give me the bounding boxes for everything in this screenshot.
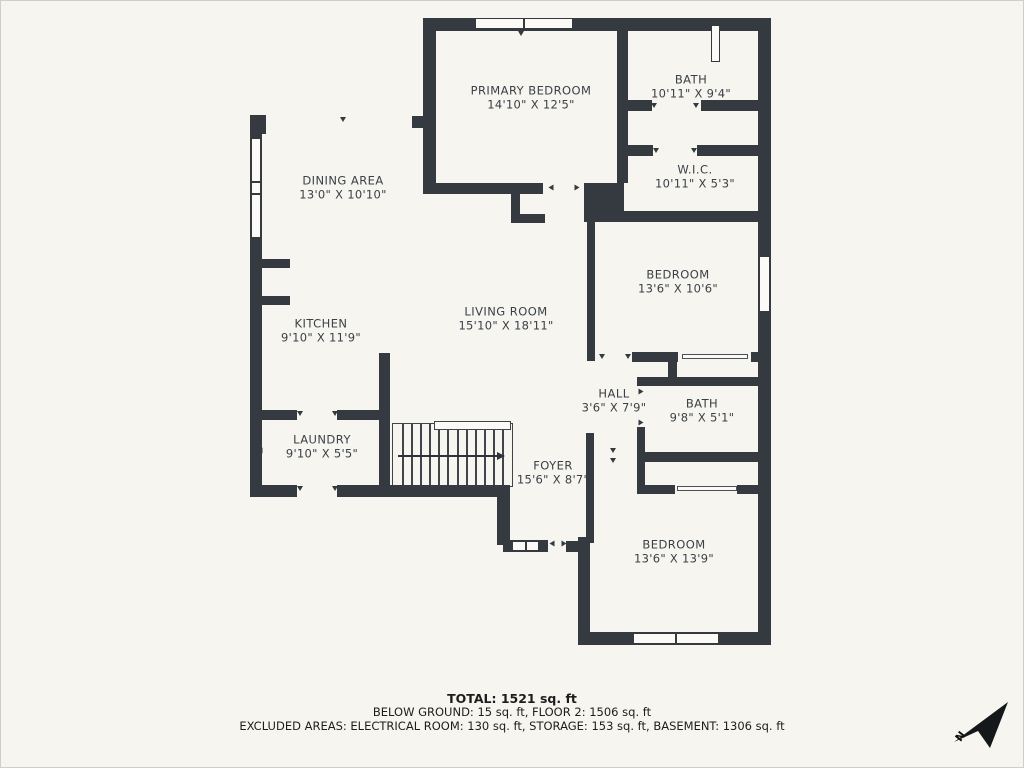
wall-segment [511,214,545,223]
wall-segment [637,452,758,462]
door-tick [258,448,263,454]
room-name: W.I.C. [655,164,735,178]
room-name: BEDROOM [638,269,718,283]
room-name: LAUNDRY [286,434,358,448]
room-name: BATH [670,398,735,412]
room-label-dining-area: DINING AREA13'0" X 10'10" [299,175,387,202]
room-dimensions: 15'6" X 8'7" [517,473,589,487]
door-tick [550,541,555,547]
wall-segment [250,410,297,420]
wall-segment [497,490,510,545]
room-name: KITCHEN [281,318,361,332]
wall-segment [637,485,675,494]
closet-door-line [682,354,748,359]
room-dimensions: 13'6" X 10'6" [638,282,718,296]
compass-arrow [946,694,1016,754]
room-label-hall: HALL3'6" X 7'9" [582,388,647,415]
room-name: HALL [582,388,647,402]
door-tick [332,486,338,491]
door-tick [610,448,616,453]
window-mullion [252,193,260,195]
wall-segment [637,377,758,386]
floorplan-page: PRIMARY BEDROOM14'10" X 12'5"BATH10'11" … [0,0,1024,768]
room-label-primary-bedroom: PRIMARY BEDROOM14'10" X 12'5" [471,85,592,112]
excluded-areas-text: EXCLUDED AREAS: ELECTRICAL ROOM: 130 sq.… [0,720,1024,734]
area-summary: TOTAL: 1521 sq. ft BELOW GROUND: 15 sq. … [0,692,1024,733]
room-dimensions: 13'0" X 10'10" [299,188,387,202]
room-label-living-room: LIVING ROOM15'10" X 18'11" [458,306,553,333]
wall-segment [624,211,758,222]
window-mullion [525,542,527,550]
window [711,25,720,62]
room-dimensions: 10'11" X 5'3" [655,177,735,191]
room-name: PRIMARY BEDROOM [471,85,592,99]
room-label-bedroom-1: BEDROOM13'6" X 10'6" [638,269,718,296]
wall-segment [587,222,595,361]
room-name: DINING AREA [299,175,387,189]
door-tick [549,185,554,191]
door-tick [691,148,697,153]
wall-segment [628,145,653,156]
door-tick [332,411,338,416]
room-label-bedroom-2: BEDROOM13'6" X 13'9" [634,539,714,566]
below-ground-text: BELOW GROUND: 15 sq. ft, FLOOR 2: 1506 s… [0,706,1024,720]
door-tick [639,420,644,426]
room-label-laundry: LAUNDRY9'10" X 5'5" [286,434,358,461]
wall-segment [262,259,290,268]
wall-segment [751,352,770,362]
door-tick [297,486,303,491]
wall-segment [423,183,543,194]
room-dimensions: 15'10" X 18'11" [458,319,553,333]
room-label-kitchen: KITCHEN9'10" X 11'9" [281,318,361,345]
door-tick [651,103,657,108]
room-dimensions: 10'11" X 9'4" [651,87,731,101]
room-dimensions: 13'6" X 13'9" [634,552,714,566]
wall-segment [586,433,594,543]
window-mullion [523,19,525,28]
wall-segment [379,353,390,497]
wall-segment [697,145,758,156]
wall-segment [262,296,290,305]
window-mullion [675,634,677,643]
door-tick [562,541,567,547]
room-name: LIVING ROOM [458,306,553,320]
wall-segment [584,183,624,222]
window [251,138,261,238]
north-compass-icon: N [946,694,1016,754]
door-tick [599,354,605,359]
wall-segment [758,18,771,645]
room-dimensions: 3'6" X 7'9" [582,401,647,415]
door-tick [625,354,631,359]
door-tick [297,411,303,416]
room-label-bath-lower: BATH9'8" X 5'1" [670,398,735,425]
room-label-bath-upper: BATH10'11" X 9'4" [651,74,731,101]
door-tick [693,103,699,108]
wall-segment [701,100,758,111]
door-tick [518,31,524,36]
room-label-foyer: FOYER15'6" X 8'7" [517,460,589,487]
wall-segment [337,410,390,420]
closet-door-line [677,486,737,491]
door-tick [653,148,659,153]
stair-rail [434,421,511,430]
door-tick [575,185,580,191]
wall-segment [250,115,266,134]
room-label-wic: W.I.C.10'11" X 5'3" [655,164,735,191]
stair-arrow-head [497,452,505,460]
stair-direction-arrow [398,455,498,457]
window [475,18,573,29]
total-area-text: TOTAL: 1521 sq. ft [0,692,1024,706]
wall-segment [737,485,758,494]
wall-segment [378,485,510,497]
window [759,256,770,312]
room-dimensions: 9'8" X 5'1" [670,411,735,425]
room-dimensions: 9'10" X 11'9" [281,331,361,345]
window-mullion [252,181,260,183]
window [512,541,539,551]
wall-segment [628,100,652,111]
wall-segment [578,537,590,640]
room-name: BATH [651,74,731,88]
room-name: FOYER [517,460,589,474]
room-dimensions: 14'10" X 12'5" [471,98,592,112]
door-tick [340,117,346,122]
room-dimensions: 9'10" X 5'5" [286,447,358,461]
room-name: BEDROOM [634,539,714,553]
wall-segment [423,18,436,193]
window [633,633,719,644]
wall-segment [617,31,628,183]
door-tick [610,458,616,463]
